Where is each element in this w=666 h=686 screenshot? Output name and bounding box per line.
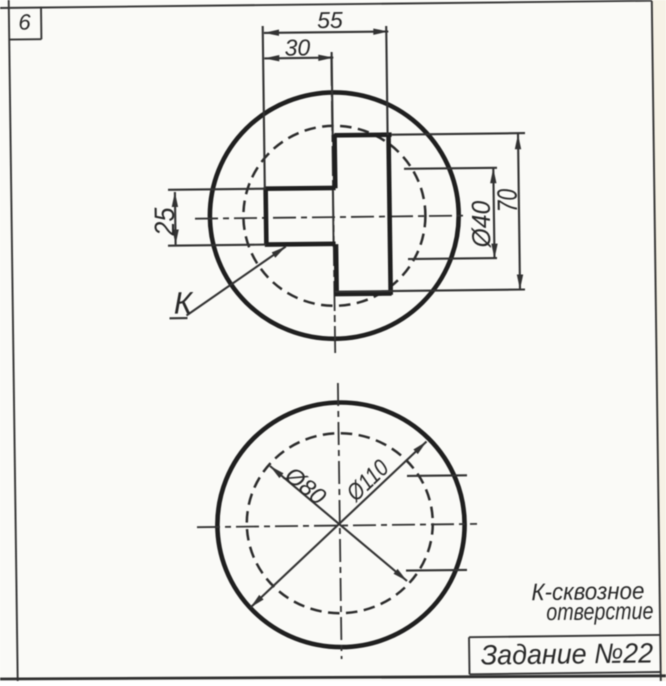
svg-text:Ø40: Ø40 xyxy=(467,201,496,249)
svg-text:К: К xyxy=(174,285,194,320)
svg-text:6: 6 xyxy=(18,9,31,34)
svg-text:55: 55 xyxy=(317,7,343,33)
svg-text:30: 30 xyxy=(284,34,310,60)
svg-text:Задание №22: Задание №22 xyxy=(481,637,654,671)
svg-text:25: 25 xyxy=(149,207,181,237)
svg-text:отверстие: отверстие xyxy=(546,597,653,626)
svg-text:70: 70 xyxy=(493,189,524,213)
